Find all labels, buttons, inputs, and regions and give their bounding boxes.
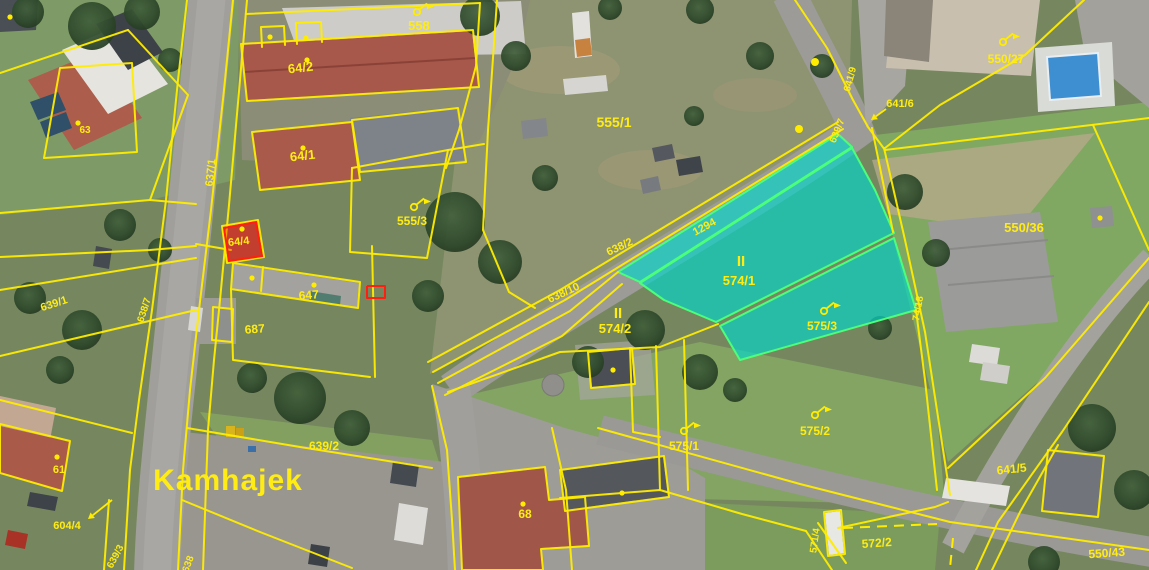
parcel-number-label: 575/2 — [800, 424, 830, 438]
cadastral-map-view[interactable]: IIII 55864/26364/1637/1555/1555/364/4647… — [0, 0, 1149, 570]
parcel-number-label: 61 — [53, 464, 65, 476]
place-name-label: Kamhajek — [153, 464, 303, 497]
building-dot — [610, 367, 615, 372]
tree — [62, 310, 102, 350]
parcel-number-label: 575/1 — [669, 439, 699, 453]
vehicle — [394, 503, 428, 545]
tree — [746, 42, 774, 70]
swimming-pool — [1047, 53, 1101, 100]
parcel-number-label: 574/1 — [723, 273, 756, 288]
tree — [532, 165, 558, 191]
building-dot — [303, 35, 308, 40]
parcel-number-label: 641/6 — [886, 98, 914, 110]
parcel-number-label: 647 — [298, 287, 319, 302]
round-pad — [542, 374, 564, 396]
building-dot — [249, 275, 254, 280]
tree — [682, 354, 718, 390]
parcel-number-label: 572/2 — [861, 535, 892, 551]
map-canvas: IIII 55864/26364/1637/1555/1555/364/4647… — [0, 0, 1149, 570]
building-roof — [884, 0, 933, 62]
tree — [412, 280, 444, 312]
tree — [237, 363, 267, 393]
building-dot — [267, 34, 272, 39]
tree — [922, 239, 950, 267]
parcel-number-label: 550/36 — [1004, 220, 1044, 235]
caravan — [575, 38, 592, 57]
parcel-number-label: 574/2 — [599, 321, 632, 336]
vehicle — [521, 118, 548, 139]
parcel-number-label: 604/4 — [53, 520, 81, 532]
tree — [104, 209, 136, 241]
tree — [723, 378, 747, 402]
building-dot — [619, 490, 624, 495]
boundary-vertex-dot — [811, 58, 819, 66]
parcel-number-label: 687 — [244, 321, 265, 336]
tree — [478, 240, 522, 284]
parcel-number-label: 64/2 — [287, 59, 314, 77]
building-roof — [1042, 452, 1103, 516]
tree — [274, 372, 326, 424]
tree — [684, 106, 704, 126]
tree — [810, 54, 834, 78]
roman-two-symbol: II — [614, 305, 622, 322]
tree — [334, 410, 370, 446]
tree — [887, 174, 923, 210]
vehicle — [93, 246, 112, 269]
parcel-number-label: 68 — [518, 507, 532, 521]
parcel-number-label: 555/3 — [397, 214, 427, 228]
parcel-number-label: 639/2 — [309, 439, 339, 453]
building-roof — [212, 308, 232, 341]
parcel-number-label: 63 — [79, 125, 91, 136]
building-dot — [7, 14, 12, 19]
building-dot — [520, 501, 525, 506]
parcel-number-label: 550/27 — [988, 52, 1025, 66]
tree — [501, 41, 531, 71]
roman-two-symbol: II — [737, 253, 745, 270]
boundary-vertex-dot — [795, 125, 803, 133]
parcel-number-label: 575/3 — [807, 319, 837, 333]
dirt-patch — [713, 78, 797, 112]
building-dot — [54, 454, 59, 459]
building-dot — [1097, 215, 1102, 220]
parcel-number-label: 558 — [408, 18, 430, 33]
parcel-number-label: 64/4 — [227, 235, 250, 249]
small-object — [248, 446, 256, 452]
parcel-number-label: 550/43 — [1088, 545, 1126, 562]
parcel-number-label: 64/1 — [289, 147, 316, 165]
parcel-number-label: 555/1 — [596, 114, 631, 130]
tree — [46, 356, 74, 384]
building-dot — [239, 226, 244, 231]
